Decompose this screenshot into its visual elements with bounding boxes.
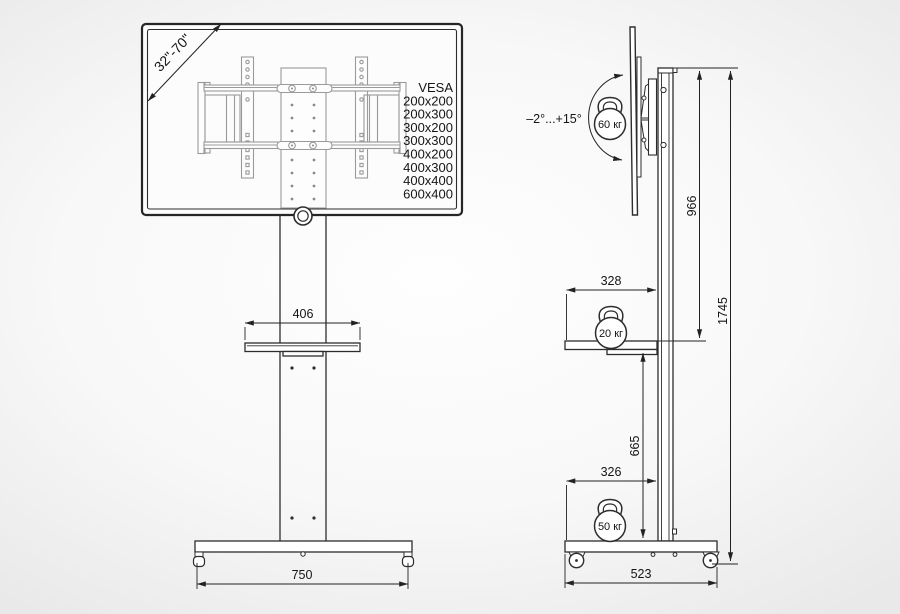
load-tv-label: 60 кг — [598, 119, 622, 131]
vesa-list: VESA 200x200 200x300 300x200 300x300 400… — [403, 80, 453, 201]
dim-base-depth: 523 — [565, 554, 717, 588]
dim-label-966: 966 — [685, 196, 699, 217]
base-side — [565, 541, 719, 568]
vesa-rail-left — [242, 57, 254, 178]
dim-label-326: 326 — [601, 465, 622, 479]
tilt-bracket-side — [641, 79, 657, 155]
vesa-size: 600x400 — [403, 186, 453, 201]
cable-hole — [294, 207, 312, 225]
kettlebell-60kg-icon: 60 кг — [595, 98, 626, 140]
shelf-front — [245, 343, 360, 356]
load-shelf-label: 20 кг — [599, 328, 623, 340]
stand-front — [194, 207, 414, 567]
tv-panel-side — [630, 27, 638, 215]
dim-shelf-to-base: 665 — [628, 353, 643, 538]
dim-mount-height: 966 — [685, 71, 700, 338]
front-view: 32"-70" VESA 200x200 200x300 300x200 300… — [142, 24, 462, 589]
caster-side-right — [703, 552, 719, 568]
dim-label-523: 523 — [631, 567, 652, 581]
kettlebell-20kg-icon: 20 кг — [596, 307, 627, 349]
vesa-rail-side — [637, 57, 641, 177]
caster-side-left — [569, 552, 585, 568]
dim-label-328: 328 — [601, 274, 622, 288]
kettlebell-50kg-icon: 50 кг — [595, 500, 626, 542]
dim-label-750: 750 — [292, 568, 313, 582]
dim-label-665: 665 — [628, 436, 642, 457]
tilt-range-label: –2°...+15° — [526, 112, 582, 126]
dim-base-width: 750 — [197, 563, 408, 589]
dim-label-406: 406 — [293, 307, 314, 321]
blueprint-canvas: 32"-70" VESA 200x200 200x300 300x200 300… — [0, 0, 900, 614]
dim-label-1745: 1745 — [716, 297, 730, 325]
caster-front-left — [194, 552, 205, 567]
load-base-label: 50 кг — [598, 521, 622, 533]
side-view: –2°...+15° 60 кг 20 кг 50 кг — [526, 27, 738, 588]
column-side — [658, 68, 677, 541]
tv-stand-diagram: 32"-70" VESA 200x200 200x300 300x200 300… — [0, 0, 900, 614]
vesa-rail-right — [356, 57, 368, 178]
dim-shelf-width: 406 — [245, 307, 360, 340]
base-front — [194, 541, 414, 567]
dim-total-height: 1745 — [716, 71, 731, 561]
